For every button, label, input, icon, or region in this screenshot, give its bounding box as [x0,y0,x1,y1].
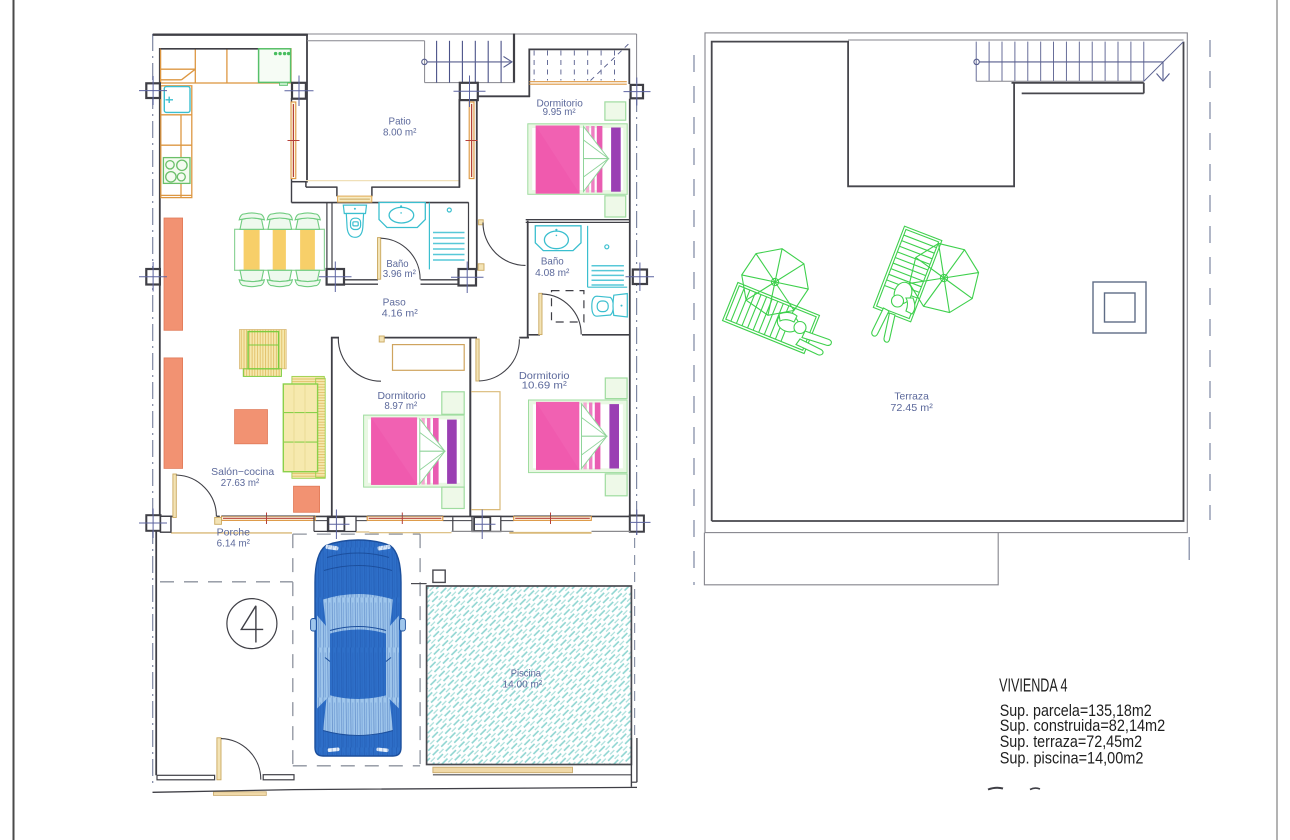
svg-text:8.97 m²: 8.97 m² [384,401,417,412]
svg-text:Porche: Porche [217,528,251,539]
svg-text:Terraza: Terraza [894,392,929,403]
svg-text:Piscina: Piscina [511,669,541,680]
svg-text:9.95 m²: 9.95 m² [543,107,577,118]
svg-text:3.96 m²: 3.96 m² [383,269,417,280]
svg-text:4.08 m²: 4.08 m² [535,268,570,279]
svg-text:72.45 m²: 72.45 m² [890,403,933,414]
svg-text:10.69 m²: 10.69 m² [522,381,568,392]
svg-text:Salón−cocina: Salón−cocina [211,467,274,478]
svg-text:4.16 m²: 4.16 m² [382,309,419,320]
svg-text:Sup. piscina=14,00m2: Sup. piscina=14,00m2 [1000,748,1144,767]
svg-text:27.63 m²: 27.63 m² [221,478,260,489]
svg-text:Baño: Baño [541,257,564,268]
svg-text:VIVIENDA 4: VIVIENDA 4 [999,675,1067,696]
svg-text:Patio: Patio [389,116,412,127]
svg-text:8.00 m²: 8.00 m² [383,127,417,138]
svg-text:6.14 m²: 6.14 m² [217,538,251,549]
svg-text:14.00 m²: 14.00 m² [503,680,543,691]
svg-text:Paso: Paso [383,298,406,309]
